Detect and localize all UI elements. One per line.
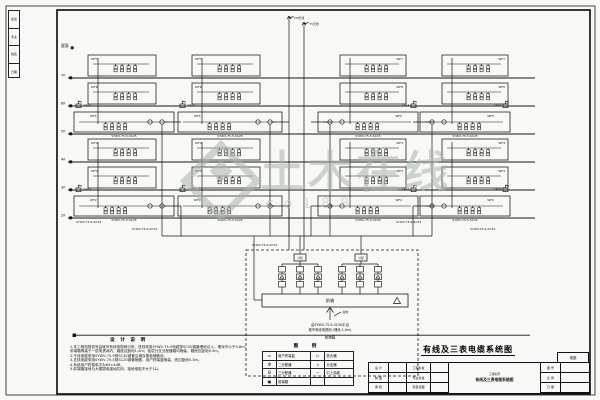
box-label: WF7 [498,57,505,61]
floor-tick [70,133,72,135]
tv-outlet-icon [376,208,379,211]
legend-symbol: ▷ [311,352,325,361]
tv-outlet-icon [121,94,124,97]
wire [506,185,510,186]
cable-spec-label: SYWV-75-5-SC25 [217,134,242,138]
headend-amp-module [279,274,286,280]
cable-spec-label: SYWV-75-9-SC32 [76,220,101,224]
ground-label: 接地 [343,310,349,314]
tv-outlet-icon [124,127,127,130]
signature-cell: 姓名 [9,46,19,64]
cable-spec-label: SYWV-75-9-SC32 [132,227,157,231]
tv-outlet-icon [134,69,137,72]
box-label: WF2 [395,198,402,202]
tv-outlet-icon [372,150,375,153]
tv-outlet-icon [208,124,211,127]
tv-outlet-icon [378,181,381,184]
wire [327,308,331,313]
tb-label-pm: 项目经理 [407,383,431,393]
tb-label-design: 设 计 [369,363,389,373]
tv-outlet-icon [208,211,211,214]
cable-spec-label: SYWV-75-5-SC25 [355,218,380,222]
amp-rating-label: 230A [493,104,502,108]
tv-outlet-icon [465,211,468,214]
tv-outlet-icon [121,178,124,181]
tv-outlet-icon [385,97,388,100]
floor-tick [70,105,72,107]
signature-cell: 专业 [9,29,19,47]
tv-outlet-icon [480,69,483,72]
amp-triangle-icon [394,298,401,304]
tv-outlet-icon [218,66,221,69]
tv-outlet-icon [385,94,388,97]
tv-outlet-icon [478,211,481,214]
amp-rating-label: 230A [401,104,410,108]
tv-outlet-icon [114,153,117,156]
cable-spec-label: SYWV-75-9-SC32 [396,220,421,224]
tv-outlet-icon [480,94,483,97]
tv-outlet-icon [117,211,120,214]
tv-outlet-icon [127,69,130,72]
tv-outlet-icon [372,97,375,100]
tv-outlet-icon [376,211,379,214]
cable-spec-label: SYWV-75-5-SC25 [452,134,477,138]
headend-module [297,267,304,273]
signature-cell: 日期 [9,64,19,81]
tv-outlet-icon [369,208,372,211]
tv-outlet-icon [363,127,366,130]
tv-outlet-icon [372,69,375,72]
tv-outlet-icon [369,211,372,214]
headend-module [279,267,286,273]
tv-outlet-icon [471,211,474,214]
tb-value [431,373,449,383]
legend-symbol: ┬ [311,360,325,369]
tv-outlet-icon [480,66,483,69]
amp-triangle-icon [376,275,380,278]
tv-outlet-icon [218,181,221,184]
tv-outlet-icon [228,208,231,211]
title-block: 电施 设 计 制 图 审 核 工程负责 专业负责 项目经理 工程名称 有线及三表… [368,362,590,394]
tv-outlet-icon [111,124,114,127]
tb-value [561,373,589,383]
tv-outlet-icon [238,97,241,100]
tv-outlet-icon [372,181,375,184]
tv-outlet-icon [225,97,228,100]
tv-outlet-icon [111,211,114,214]
tv-outlet-icon [124,208,127,211]
tv-outlet-icon [487,97,490,100]
tv-outlet-icon [385,150,388,153]
cable-spec-label: SYWV-75-5-SC25 [452,218,477,222]
tv-outlet-icon [238,69,241,72]
tv-outlet-icon [221,124,224,127]
floor-tick [70,189,72,191]
tv-outlet-icon [372,66,375,69]
tv-outlet-icon [127,94,130,97]
headend-amp-module [315,274,322,280]
tv-outlet-icon [208,127,211,130]
headend-module [375,267,382,273]
amp-triangle-icon [298,275,302,278]
tv-outlet-icon [117,124,120,127]
tv-outlet-icon [465,208,468,211]
tv-outlet-icon [467,66,470,69]
box-label: WF7 [195,57,202,61]
tv-outlet-icon [114,94,117,97]
tv-outlet-icon [225,69,228,72]
tv-outlet-icon [487,150,490,153]
tv-outlet-icon [104,127,107,130]
splitter-label: 分配 [358,256,364,260]
box-label: WF5 [90,114,97,118]
notes-heading: 设 计 说 明 [70,337,275,343]
tv-outlet-icon [127,178,130,181]
tv-outlet-icon [218,153,221,156]
legend-label: 引上电缆 [325,369,354,378]
tv-outlet-icon [225,178,228,181]
tv-outlet-icon [365,178,368,181]
tv-outlet-icon [225,94,228,97]
tv-outlet-icon [121,153,124,156]
box-label: WF6 [195,85,202,89]
headend-module [315,282,322,288]
headend-module [357,267,364,273]
tv-outlet-icon [487,181,490,184]
amp-triangle-icon [316,275,320,278]
tv-outlet-icon [365,150,368,153]
box-label: WF4 [195,141,202,145]
tb-label-check: 审 核 [369,383,389,393]
legend-symbol: Θ [263,369,277,378]
legend-symbol: ▭ [263,352,277,361]
floor-label: 6F [61,101,66,106]
tv-outlet-icon [134,66,137,69]
headend-amp-module [339,274,346,280]
tv-outlet-icon [134,150,137,153]
signature-strip: 会签 专业 姓名 日期 [8,10,20,78]
tv-outlet-icon [458,124,461,127]
tv-outlet-icon [218,69,221,72]
tv-outlet-icon [218,97,221,100]
tv-outlet-icon [465,124,468,127]
tv-outlet-icon [474,178,477,181]
tb-value [561,363,589,373]
tb-label-pm: 工程负责 [407,363,431,373]
box-label: WF2 [487,198,494,202]
tv-outlet-icon [238,181,241,184]
tv-outlet-icon [231,94,234,97]
tv-outlet-icon [369,127,372,130]
headend-module [339,282,346,288]
cable-spec-label: SYWV-75-5-SC25 [355,134,380,138]
floor-tick [71,47,73,49]
tv-outlet-icon [231,66,234,69]
tv-outlet-icon [467,94,470,97]
tv-outlet-icon [231,69,234,72]
box-label: WF2 [90,198,97,202]
tv-outlet-icon [215,127,218,130]
signature-cell: 会签 [9,11,19,29]
tv-outlet-icon [471,208,474,211]
tv-outlet-icon [121,66,124,69]
tv-outlet-icon [221,211,224,214]
tv-outlet-icon [127,181,130,184]
notes-block: 设 计 说 明 1.本工程电视信号由城市有线电视网引来，进线采用SYWV-75-… [70,337,275,372]
tv-outlet-icon [378,153,381,156]
floor-label: 5F [61,129,66,134]
box-label: WF6 [91,85,98,89]
title-block-stage: 电施 [557,352,589,363]
tv-outlet-icon [487,178,490,181]
tv-outlet-icon [225,66,228,69]
tv-outlet-icon [487,153,490,156]
floor-tick [70,77,72,79]
tv-outlet-icon [385,153,388,156]
tb-value [431,363,449,373]
tv-outlet-icon [474,94,477,97]
tv-outlet-icon [124,211,127,214]
tb-drawing-name: 有线及三表电缆系统图 [476,377,514,383]
tv-outlet-icon [114,66,117,69]
tv-outlet-icon [134,153,137,156]
tv-outlet-icon [487,94,490,97]
tv-outlet-icon [121,97,124,100]
tv-outlet-icon [124,124,127,127]
floor-label: 4F [61,157,66,162]
tv-outlet-icon [356,208,359,211]
tv-outlet-icon [365,94,368,97]
drawing-title: 有线及三表电缆系统图 [398,337,538,356]
tb-label-pm: 专业负责 [407,373,431,383]
tv-outlet-icon [478,124,481,127]
tv-outlet-icon [218,178,221,181]
tv-outlet-icon [487,66,490,69]
box-label: WF2 [194,198,201,202]
legend-symbol [311,377,325,386]
tv-outlet-icon [458,127,461,130]
amp-rating-label: 230A [187,104,196,108]
tb-value [431,383,449,393]
splitter-label: 分配 [297,256,303,260]
tv-outlet-icon [218,94,221,97]
legend-label: 放大器 [325,352,354,361]
tv-outlet-icon [228,124,231,127]
wire [334,312,341,316]
tv-outlet-icon [372,178,375,181]
tv-outlet-icon [365,69,368,72]
tv-outlet-icon [114,181,117,184]
tv-outlet-icon [474,181,477,184]
tv-outlet-icon [467,69,470,72]
tv-outlet-icon [372,153,375,156]
tv-outlet-icon [134,97,137,100]
tv-outlet-icon [478,127,481,130]
tv-outlet-icon [127,97,130,100]
tv-outlet-icon [372,94,375,97]
tv-outlet-icon [467,153,470,156]
tv-outlet-icon [134,181,137,184]
tb-value [561,383,589,393]
tv-outlet-icon [238,66,241,69]
box-label: WF3 [91,169,98,173]
tv-outlet-icon [114,69,117,72]
cable-spec-label: SYWV-75-5-SC25 [111,218,136,222]
tv-outlet-icon [365,97,368,100]
floor-label: 屋面 [61,43,69,48]
tv-outlet-icon [121,181,124,184]
box-label: WF5 [395,114,402,118]
tv-outlet-icon [474,153,477,156]
note-line: 5.前端箱接地与大楼弱电接地共用，接地电阻不大于1Ω。 [70,367,275,372]
amp-triangle-icon [358,275,362,278]
tb-label-no: 图 号 [541,363,561,373]
tv-outlet-icon [231,178,234,181]
tv-outlet-icon [474,150,477,153]
cable-spec-label: SYWV-75-5-SC25 [111,134,136,138]
headend-module [297,282,304,288]
tv-outlet-icon [480,178,483,181]
tv-outlet-icon [378,66,381,69]
legend-symbol: Φ [263,360,277,369]
tv-outlet-icon [385,69,388,72]
tv-outlet-icon [134,94,137,97]
cad-drawing-viewport: 屋面7F6F5F4F3F2FWF7WF6230AWF5SYWV-75-5-SC2… [0,0,600,400]
tv-outlet-icon [114,178,117,181]
tv-outlet-icon [480,97,483,100]
amp-triangle-icon [280,275,284,278]
tb-label-draft: 制 图 [369,373,389,383]
tv-outlet-icon [127,150,130,153]
box-label: WF6 [498,85,505,89]
headend-module [279,282,286,288]
legend-label: 前端箱 [277,377,311,386]
tv-outlet-icon [458,211,461,214]
wire [183,101,187,102]
tv-outlet-icon [127,66,130,69]
amp-rating-label: 230A [83,104,92,108]
tb-value [389,363,407,373]
floor-tick [70,161,72,163]
box-label: WF6 [396,85,403,89]
tv-outlet-icon [471,124,474,127]
wire [414,185,418,186]
tv-outlet-icon [121,69,124,72]
tv-outlet-icon [221,127,224,130]
floor-label: 3F [61,185,66,190]
legend-label [325,377,354,386]
tv-outlet-icon [474,69,477,72]
tv-outlet-icon [104,124,107,127]
tv-outlet-icon [478,208,481,211]
tv-outlet-icon [467,181,470,184]
tv-outlet-icon [231,97,234,100]
tv-outlet-icon [378,178,381,181]
tv-outlet-icon [117,127,120,130]
legend-table: 图 例 ▭ 用户终端盒 ▷ 放大器 Φ 二分配器 ┬ 分支器 Θ 三分配器 ⌐ … [262,343,354,386]
tv-outlet-icon [365,66,368,69]
box-label: WF5 [194,114,201,118]
headend-amp-module [357,274,364,280]
legend-label: 三分配器 [277,369,311,378]
legend-heading: 图 例 [262,343,354,349]
tv-outlet-icon [356,211,359,214]
tv-outlet-icon [215,211,218,214]
amp-rating-label: 230A [401,188,410,192]
tv-outlet-icon [111,127,114,130]
tv-outlet-icon [111,208,114,211]
tv-outlet-icon [228,127,231,130]
tv-outlet-icon [385,66,388,69]
box-label: WF7 [91,57,98,61]
headend-unit-box [262,294,408,307]
tv-outlet-icon [480,181,483,184]
headend-amp-module [297,274,304,280]
tv-outlet-icon [238,178,241,181]
amp-rating-label: 230A [187,188,196,192]
tv-outlet-icon [231,153,234,156]
headend-module [315,267,322,273]
box-label: WF3 [195,169,202,173]
tv-outlet-icon [363,208,366,211]
wire [506,101,510,102]
tv-outlet-icon [363,124,366,127]
amp-triangle-icon [340,275,344,278]
box-label: WF4 [396,141,403,145]
box-label: WF3 [498,169,505,173]
wire [183,185,187,186]
headend-unit-label: 前端 [326,297,334,304]
box-label: WF7 [396,57,403,61]
tb-project-label: 工程名称 [489,372,500,376]
box-label: WF3 [396,169,403,173]
wire [330,308,334,313]
tv-outlet-icon [385,178,388,181]
tv-outlet-icon [225,181,228,184]
floor-tick [70,217,72,219]
cable-spec-label: SYWV-75-9-SC32 [252,243,277,247]
legend-label: 分支器 [325,360,354,369]
tv-outlet-icon [215,208,218,211]
tv-outlet-icon [487,69,490,72]
tv-outlet-icon [369,124,372,127]
tv-outlet-icon [458,208,461,211]
tv-outlet-icon [104,211,107,214]
amp-rating-label: 230A [83,188,92,192]
tb-label-date: 日 期 [541,383,561,393]
tb-value [389,383,407,393]
tv-outlet-icon [376,127,379,130]
tv-outlet-icon [465,127,468,130]
legend-symbol: ▣ [263,377,277,386]
tv-outlet-icon [467,97,470,100]
tv-outlet-icon [474,66,477,69]
tv-outlet-icon [228,211,231,214]
amp-rating-label: 230A [493,188,502,192]
headend-module [339,267,346,273]
antenna-label: FM天线 [295,16,305,20]
tv-outlet-icon [238,150,241,153]
wire [414,101,418,102]
feed-note: 城市有线电视网 (埋深-1.0m) [309,327,352,332]
wire [79,185,83,186]
tv-outlet-icon [225,150,228,153]
feed-note: 由SYWV-75-9-SC50引自 [311,322,349,327]
tv-outlet-icon [127,153,130,156]
box-label: WF5 [487,114,494,118]
tv-outlet-icon [467,178,470,181]
cable-spec-label: SYWV-75-9-SC32 [470,227,495,231]
